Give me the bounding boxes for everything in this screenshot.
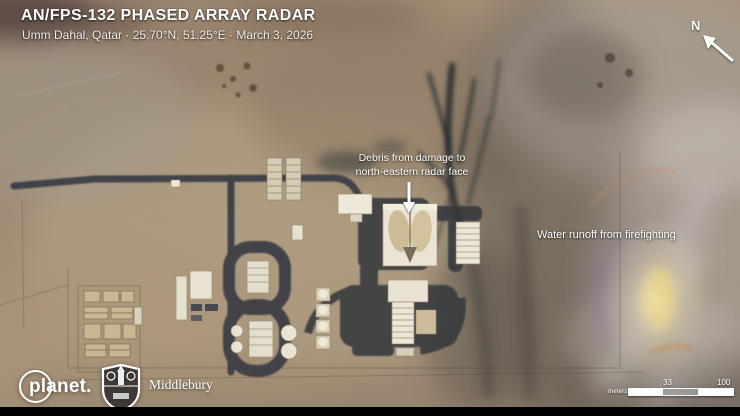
scale-segment-2: [663, 389, 697, 395]
scale-segment-3: [698, 389, 733, 395]
letterbox-strip: [0, 407, 740, 416]
north-arrow-icon: [696, 30, 738, 68]
ribbed-building-east: [456, 222, 480, 264]
annotation-debris-line2: north-eastern radar face: [356, 166, 469, 180]
page-subtitle: Umm Dahal, Qatar · 25.70°N, 51.25°E · Ma…: [22, 28, 313, 42]
scale-segment-1: [629, 389, 663, 395]
annotation-water-runoff: Water runoff from firefighting: [537, 229, 676, 241]
planet-logo: planet.: [19, 368, 111, 406]
scale-unit-label: meters: [608, 389, 627, 395]
middlebury-label: Middlebury: [149, 377, 213, 393]
annotation-debris-line1: Debris from damage to: [356, 152, 469, 166]
satellite-image: [0, 0, 740, 416]
scale-bar-graphic: [628, 388, 734, 396]
satellite-report-frame: AN/FPS-132 PHASED ARRAY RADAR Umm Dahal,…: [0, 0, 740, 416]
scale-bar: 33 100 meters: [608, 378, 736, 396]
planet-wordmark: planet.: [29, 376, 92, 398]
scale-max-label: 100: [717, 378, 730, 387]
page-title: AN/FPS-132 PHASED ARRAY RADAR: [21, 7, 316, 25]
annotation-debris: Debris from damage to north-eastern rada…: [356, 152, 469, 179]
compass: N: [688, 18, 740, 70]
scale-mid-label: 33: [663, 378, 672, 387]
middlebury-shield-icon: [100, 362, 142, 412]
debris-arrow-icon: [401, 182, 417, 216]
